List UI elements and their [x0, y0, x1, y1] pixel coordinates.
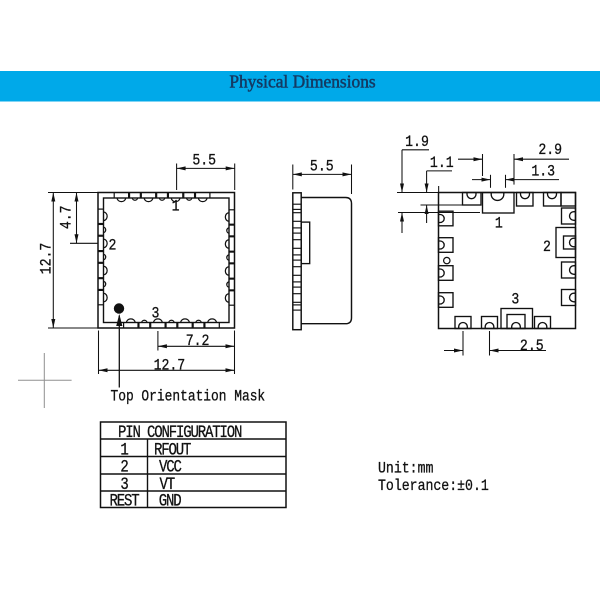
svg-text:12.7: 12.7 — [154, 357, 186, 374]
svg-text:5.5: 5.5 — [310, 159, 334, 176]
svg-text:Unit:mm: Unit:mm — [378, 460, 433, 477]
svg-text:Top Orientation Mask: Top Orientation Mask — [111, 389, 266, 406]
svg-text:1.3: 1.3 — [531, 163, 555, 180]
svg-text:2.9: 2.9 — [538, 142, 562, 159]
svg-text:7.2: 7.2 — [186, 333, 210, 350]
svg-text:2: 2 — [543, 239, 551, 256]
svg-text:4.7: 4.7 — [59, 205, 76, 229]
svg-text:5.5: 5.5 — [192, 152, 216, 169]
svg-text:Tolerance:±0.1: Tolerance:±0.1 — [378, 478, 489, 495]
svg-text:1.1: 1.1 — [430, 155, 454, 172]
svg-text:Physical Dimensions: Physical Dimensions — [229, 72, 376, 92]
svg-text:GND: GND — [159, 491, 182, 511]
svg-text:1.9: 1.9 — [405, 134, 429, 151]
svg-text:1: 1 — [172, 199, 180, 216]
svg-text:1: 1 — [495, 215, 503, 232]
svg-text:12.7: 12.7 — [39, 243, 56, 275]
svg-text:REST: REST — [110, 491, 140, 511]
svg-text:2.5: 2.5 — [520, 338, 544, 355]
svg-text:3: 3 — [511, 292, 519, 309]
svg-text:2: 2 — [109, 238, 117, 255]
svg-text:3: 3 — [152, 306, 160, 323]
